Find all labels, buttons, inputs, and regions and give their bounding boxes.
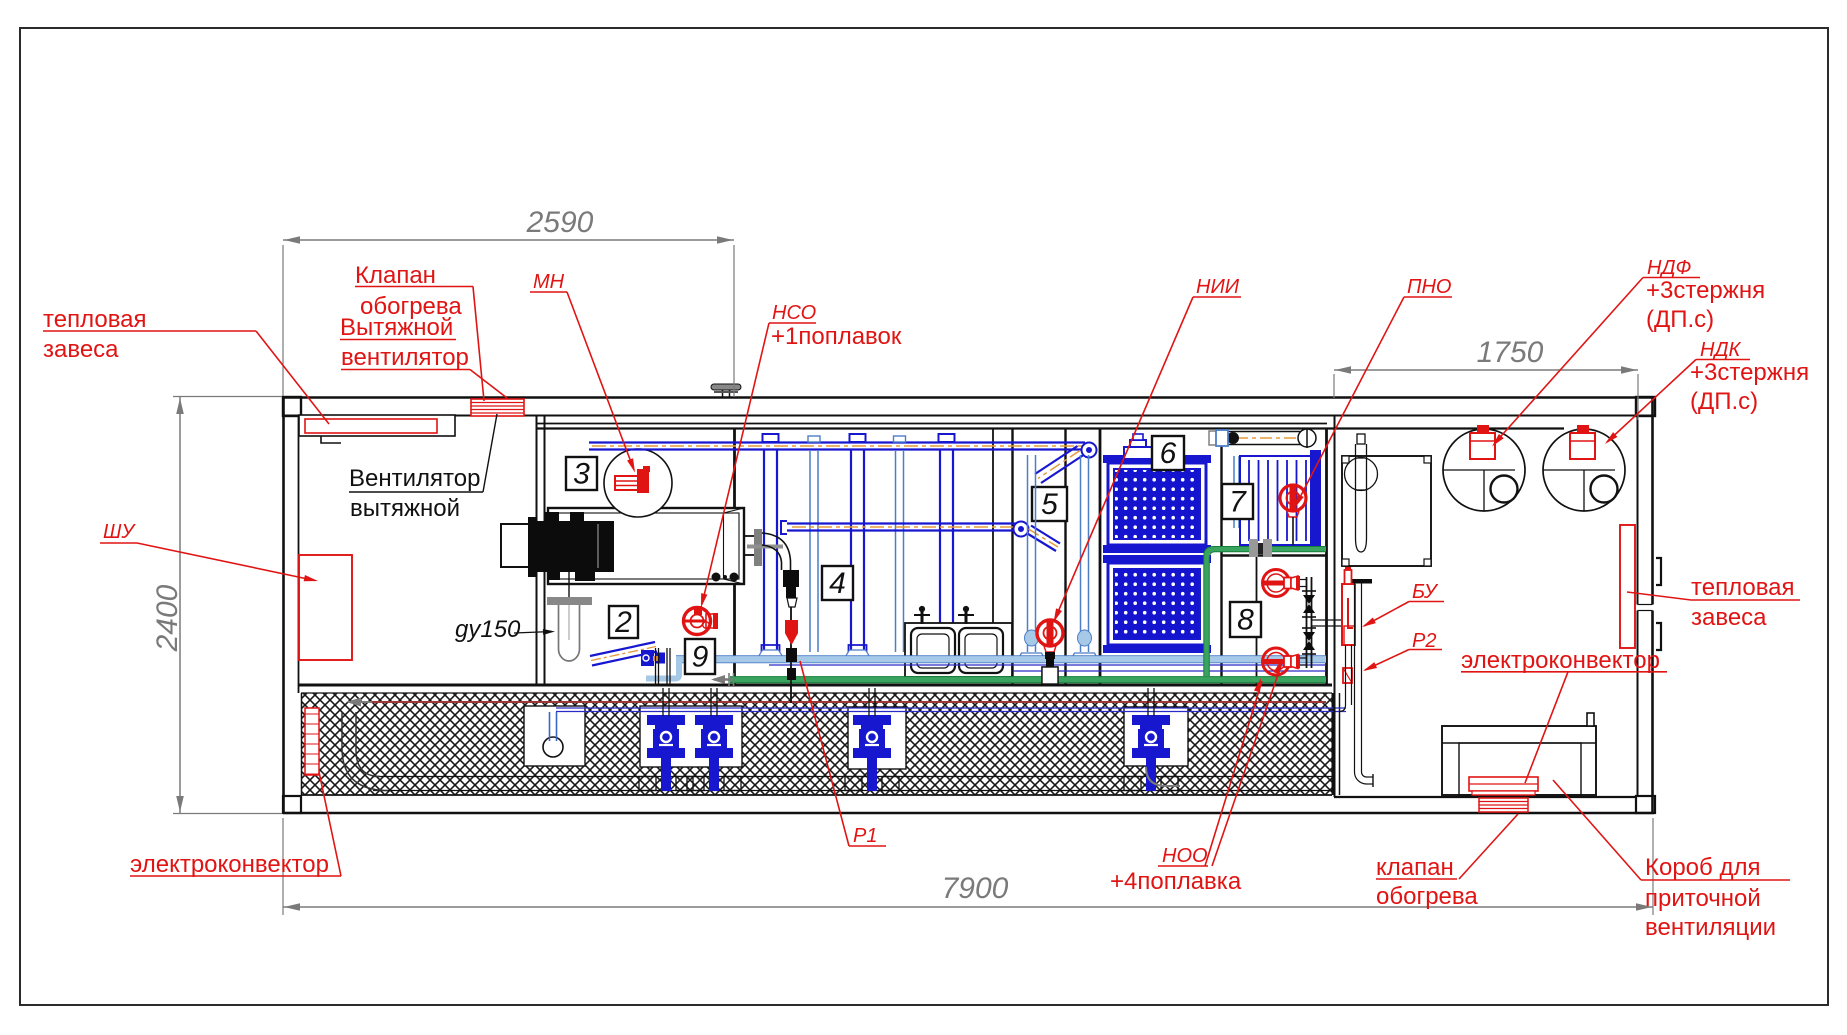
svg-text:БУ: БУ xyxy=(1412,581,1439,603)
svg-text:завеса: завеса xyxy=(1691,604,1767,631)
svg-text:(ДП.с): (ДП.с) xyxy=(1690,388,1758,415)
svg-text:2: 2 xyxy=(614,606,632,639)
svg-text:(ДП.с): (ДП.с) xyxy=(1646,306,1714,333)
svg-text:тепловая: тепловая xyxy=(1691,574,1795,601)
svg-text:Вентилятор: Вентилятор xyxy=(349,465,480,492)
svg-text:Клапан: Клапан xyxy=(355,262,436,289)
svg-text:НДФ: НДФ xyxy=(1647,257,1692,279)
svg-text:МН: МН xyxy=(533,271,565,293)
svg-text:+3стержня: +3стержня xyxy=(1646,277,1765,304)
svg-text:приточной: приточной xyxy=(1645,885,1761,912)
svg-text:9: 9 xyxy=(692,641,709,674)
svg-text:клапан: клапан xyxy=(1376,854,1454,881)
svg-text:7900: 7900 xyxy=(942,872,1009,905)
svg-text:Р1: Р1 xyxy=(853,825,877,847)
svg-text:2400: 2400 xyxy=(151,584,184,652)
svg-text:завеса: завеса xyxy=(43,336,119,363)
svg-text:вентилятор: вентилятор xyxy=(341,344,469,371)
svg-text:обогрева: обогрева xyxy=(1376,883,1478,910)
svg-text:ШУ: ШУ xyxy=(103,521,136,543)
svg-text:вентиляции: вентиляции xyxy=(1645,914,1776,941)
svg-text:электроконвектор: электроконвектор xyxy=(130,851,329,878)
svg-text:+3стержня: +3стержня xyxy=(1690,359,1809,386)
svg-text:gy150: gy150 xyxy=(455,616,521,643)
svg-text:Вытяжной: Вытяжной xyxy=(340,314,453,341)
svg-text:1750: 1750 xyxy=(1477,336,1544,369)
svg-text:ПНО: ПНО xyxy=(1407,276,1452,298)
svg-text:7: 7 xyxy=(1229,486,1247,519)
svg-text:НСО: НСО xyxy=(772,302,816,324)
svg-text:+1поплавок: +1поплавок xyxy=(771,323,902,350)
svg-text:НДК: НДК xyxy=(1700,339,1742,361)
svg-text:тепловая: тепловая xyxy=(43,306,147,333)
svg-text:вытяжной: вытяжной xyxy=(350,495,460,522)
svg-text:6: 6 xyxy=(1160,437,1177,470)
svg-text:3: 3 xyxy=(573,458,590,491)
svg-text:8: 8 xyxy=(1237,604,1254,637)
svg-text:электроконвектор: электроконвектор xyxy=(1461,647,1660,674)
svg-text:4: 4 xyxy=(829,567,846,600)
svg-text:НОО: НОО xyxy=(1162,845,1208,867)
svg-text:2590: 2590 xyxy=(526,206,594,239)
svg-text:5: 5 xyxy=(1041,488,1058,521)
svg-text:Короб для: Короб для xyxy=(1645,854,1760,881)
svg-text:НИИ: НИИ xyxy=(1196,276,1240,298)
svg-text:+4поплавка: +4поплавка xyxy=(1110,868,1242,895)
